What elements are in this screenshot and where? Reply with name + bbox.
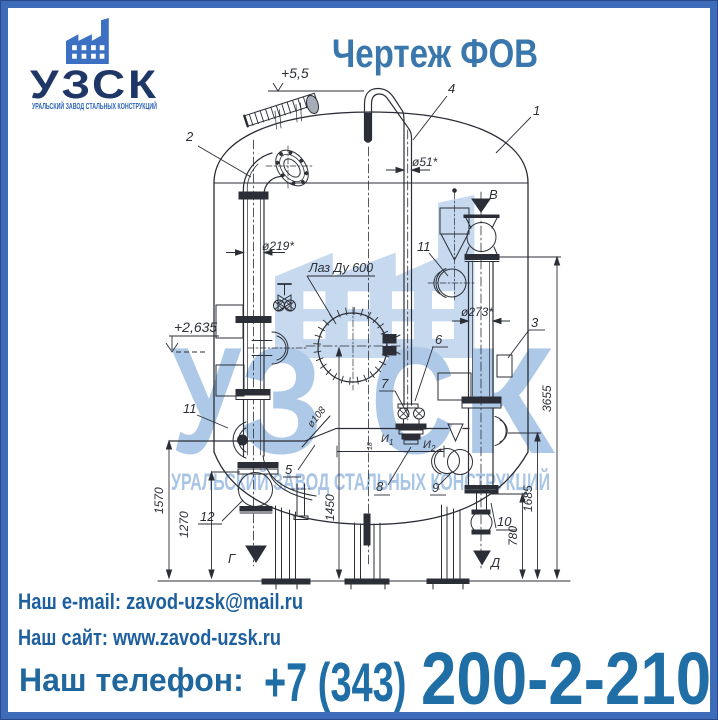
svg-text:+2,635: +2,635 — [174, 319, 217, 335]
svg-text:11: 11 — [417, 239, 431, 254]
svg-text:Д: Д — [489, 555, 500, 570]
svg-text:+5,5: +5,5 — [281, 65, 309, 81]
svg-text:1: 1 — [533, 103, 540, 118]
svg-text:4: 4 — [448, 81, 455, 96]
svg-text:1570: 1570 — [152, 487, 166, 514]
svg-text:1: 1 — [389, 438, 393, 447]
svg-text:ø51*: ø51* — [412, 155, 438, 169]
svg-text:И: И — [381, 433, 389, 445]
svg-text:18: 18 — [367, 442, 374, 450]
svg-text:В: В — [489, 187, 498, 202]
svg-text:7: 7 — [381, 376, 389, 391]
svg-text:1270: 1270 — [177, 511, 191, 538]
svg-text:И: И — [423, 439, 431, 451]
svg-text:780: 780 — [506, 526, 520, 546]
svg-text:6: 6 — [435, 332, 443, 347]
svg-text:8: 8 — [376, 479, 384, 494]
svg-text:Лаз Ду 600: Лаз Ду 600 — [308, 261, 373, 275]
svg-text:11: 11 — [183, 401, 197, 416]
svg-text:5: 5 — [285, 462, 293, 477]
svg-text:ø219*: ø219* — [262, 239, 294, 253]
svg-text:12: 12 — [200, 509, 215, 524]
svg-text:Г: Г — [228, 551, 236, 566]
svg-text:ø273*: ø273* — [461, 305, 493, 319]
svg-text:3655: 3655 — [540, 385, 554, 412]
svg-text:2: 2 — [430, 444, 436, 453]
svg-text:ø108: ø108 — [306, 405, 329, 430]
svg-text:2: 2 — [185, 129, 194, 144]
svg-text:9: 9 — [432, 480, 439, 495]
svg-text:3: 3 — [531, 315, 539, 330]
svg-text:1450: 1450 — [323, 494, 337, 521]
svg-text:1685: 1685 — [521, 485, 535, 512]
